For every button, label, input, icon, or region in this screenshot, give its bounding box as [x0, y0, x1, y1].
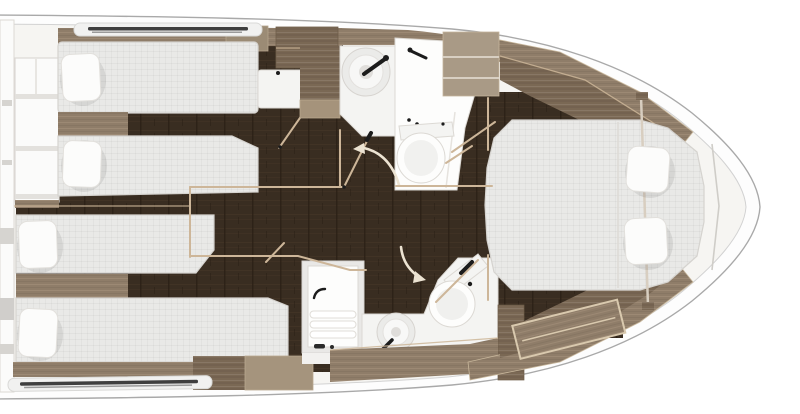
hull-window-top-glass — [88, 27, 248, 31]
bench-slat — [310, 331, 356, 338]
rail-mark — [2, 160, 12, 165]
nightstand-top — [58, 112, 128, 136]
stanchion-cap — [642, 302, 654, 310]
rail-mark — [0, 298, 14, 320]
hull-cabinet-band-bottom — [13, 362, 196, 377]
shower-head — [408, 48, 413, 53]
yacht-floor-plan — [0, 0, 800, 414]
toilet-hinge — [441, 122, 444, 125]
stanchion-cap — [636, 92, 648, 100]
toilet-bowl — [436, 288, 468, 320]
hull-window-bottom — [8, 376, 212, 392]
bench-slat — [310, 311, 356, 318]
pillow — [61, 53, 101, 102]
entry-cabinet — [443, 32, 499, 96]
master-bed — [485, 120, 704, 290]
door-hinge — [278, 145, 282, 149]
drain-dot — [330, 345, 334, 349]
pillow — [624, 217, 668, 265]
pillow — [625, 146, 670, 194]
glass-hinge — [407, 118, 411, 122]
hull-window-top-line — [92, 32, 242, 34]
hull-side-rail — [0, 20, 14, 392]
toilet-bowl — [404, 140, 438, 176]
pillow — [62, 140, 102, 187]
desk-knob — [276, 71, 280, 75]
rail-mark — [2, 100, 12, 106]
faucet-head — [383, 55, 389, 61]
vanity-cabinet-light — [300, 100, 340, 118]
bench-slat — [310, 321, 356, 328]
stair-threshold — [15, 200, 59, 208]
sink-well — [391, 327, 401, 337]
drain-fitting — [314, 344, 325, 349]
pillow — [18, 308, 58, 358]
stair-step — [15, 146, 59, 151]
vanity-cabinet — [300, 46, 340, 100]
rail-mark — [0, 344, 14, 354]
floor-plan-canvas — [0, 0, 800, 414]
stair-step — [15, 194, 59, 199]
stair-step — [15, 94, 59, 99]
toilet-hinge — [468, 282, 472, 286]
rail-mark — [0, 228, 14, 244]
nightstand-bottom — [16, 274, 128, 298]
door-hinge — [342, 185, 346, 189]
pillow — [18, 220, 58, 268]
